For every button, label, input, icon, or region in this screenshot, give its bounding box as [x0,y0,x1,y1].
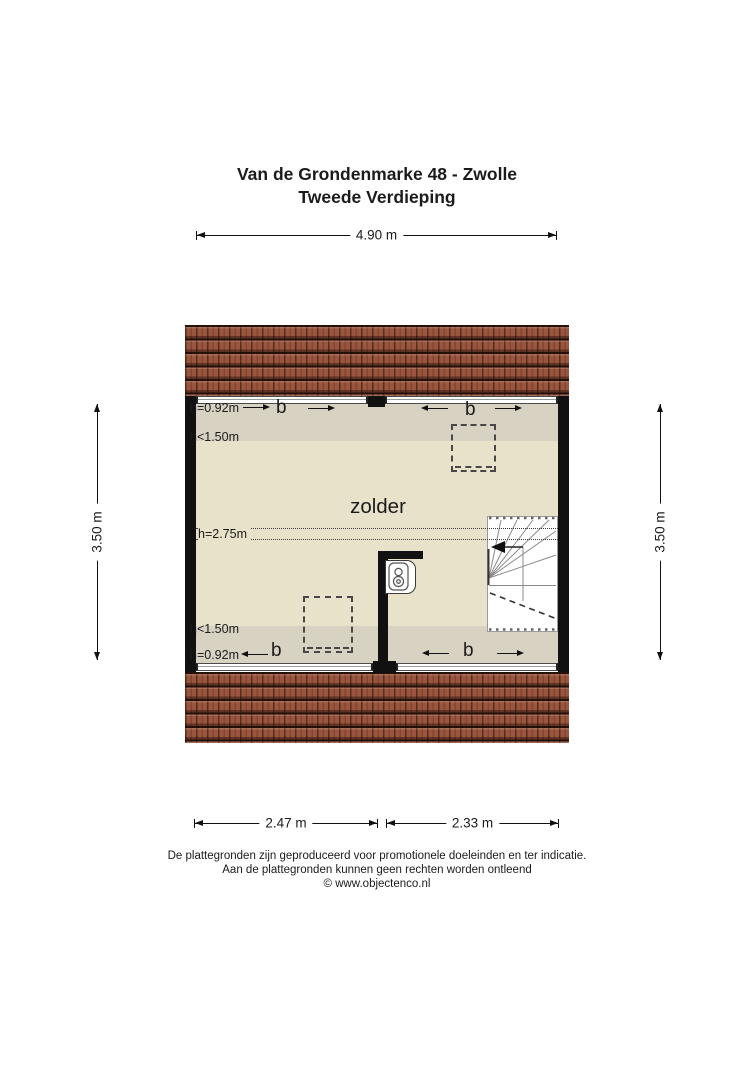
roof-window-bottom-left [303,596,353,653]
height-label-top-low: h<1.50m [190,430,239,444]
arrow-left-icon [247,654,268,655]
page-subtitle: Tweede Verdieping [0,186,754,208]
window-label-bottom-right: b [463,641,474,661]
wall-center-cap [378,551,423,559]
arrow-left-icon [428,653,449,654]
footer-disclaimer-line2: Aan de plattegronden kunnen geen rechten… [0,863,754,877]
arrow-left-icon [427,408,448,409]
roof-top [185,325,569,396]
height-line-275-lower [196,539,558,540]
dimension-tick [386,819,387,828]
roof-window-top-right [451,424,496,472]
height-line-275-upper [196,528,558,529]
height-label-bottom-ridge: h=0.92m [190,648,239,662]
height-label-bottom-low: h<1.50m [190,622,239,636]
arrow-right-icon [308,408,329,409]
arrow-right-icon [243,407,264,408]
staircase-drawing [486,515,559,633]
window-bottom-left [196,663,373,671]
height-label-middle: h=2.75m [198,527,250,541]
height-label-top-ridge: h=0.92m [190,401,239,415]
boiler-icon [386,561,415,593]
window-label-top-left: b [276,398,287,418]
dimension-tick [377,819,378,828]
dimension-tick [194,819,195,828]
floorplan-page: Van de Grondenmarke 48 - Zwolle Tweede V… [0,0,754,1067]
dimension-bottom-right: 2.33 m [387,816,558,831]
dimension-top-label: 4.90 m [350,228,403,243]
page-title: Van de Grondenmarke 48 - Zwolle [0,163,754,185]
window-label-bottom-left: b [271,641,282,661]
dimension-bottom-right-label: 2.33 m [446,816,499,831]
low-height-zone-top [196,404,558,441]
arrow-right-icon [495,408,516,409]
dimension-tick [196,231,197,240]
dimension-top: 4.90 m [197,228,556,243]
dimension-left-label: 3.50 m [88,503,107,560]
footer-copyright: © www.objectenco.nl [0,877,754,891]
wall-right [558,396,569,672]
wall-top-middle [368,396,385,407]
arrow-right-icon [497,653,518,654]
footer-disclaimer-line1: De plattegronden zijn geproduceerd voor … [0,849,754,863]
dimension-left: 3.50 m [90,404,105,660]
dimension-bottom-left-label: 2.47 m [259,816,312,831]
dimension-tick [556,231,557,240]
boiler-unit [385,560,416,594]
roof-bottom [185,672,569,743]
window-bottom-right [396,663,558,671]
window-label-top-right: b [465,400,476,420]
dimension-tick [558,819,559,828]
dimension-bottom-left: 2.47 m [195,816,377,831]
dimension-right-label: 3.50 m [651,503,670,560]
room-name: zolder [338,495,418,519]
staircase [486,515,559,633]
dimension-right: 3.50 m [653,404,668,660]
